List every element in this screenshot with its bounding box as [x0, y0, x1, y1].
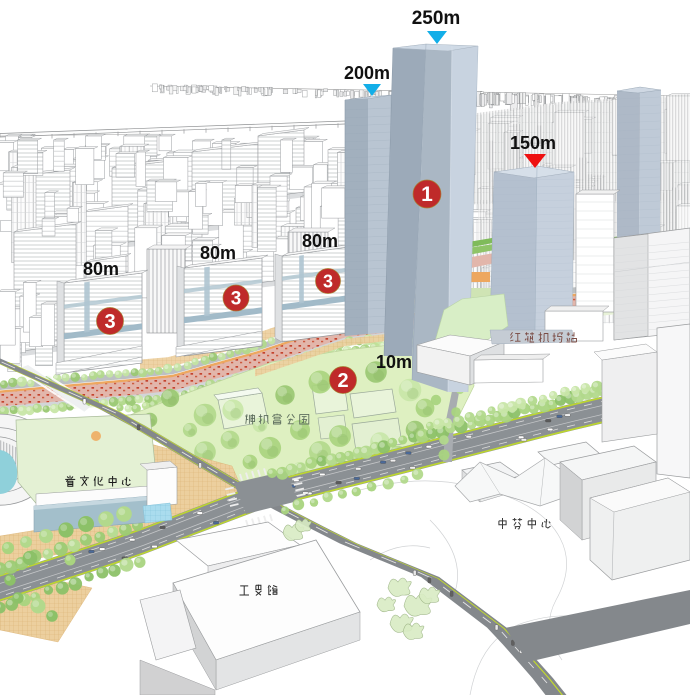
svg-text:150m: 150m	[510, 133, 556, 153]
svg-text:200m: 200m	[344, 63, 390, 83]
svg-text:80m: 80m	[302, 231, 338, 251]
svg-text:80m: 80m	[83, 259, 119, 279]
svg-text:10m: 10m	[376, 352, 412, 372]
svg-text:3: 3	[323, 271, 333, 291]
svg-text:3: 3	[231, 289, 242, 310]
svg-text:250m: 250m	[412, 8, 461, 29]
svg-text:2: 2	[337, 370, 348, 392]
svg-text:3: 3	[104, 311, 115, 333]
svg-text:80m: 80m	[200, 243, 236, 263]
svg-text:1: 1	[421, 183, 433, 206]
